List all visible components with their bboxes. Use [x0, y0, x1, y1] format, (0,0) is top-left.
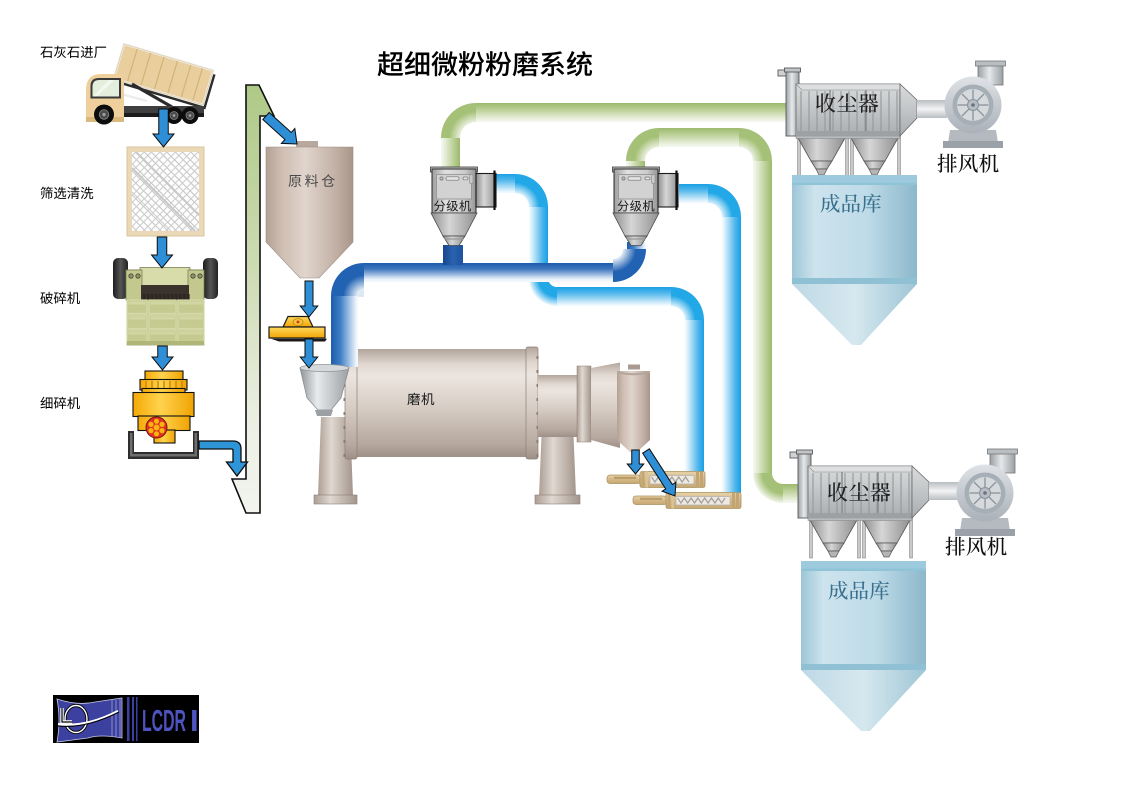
- svg-text:I: I: [190, 703, 199, 738]
- svg-text:LCDR: LCDR: [142, 703, 186, 738]
